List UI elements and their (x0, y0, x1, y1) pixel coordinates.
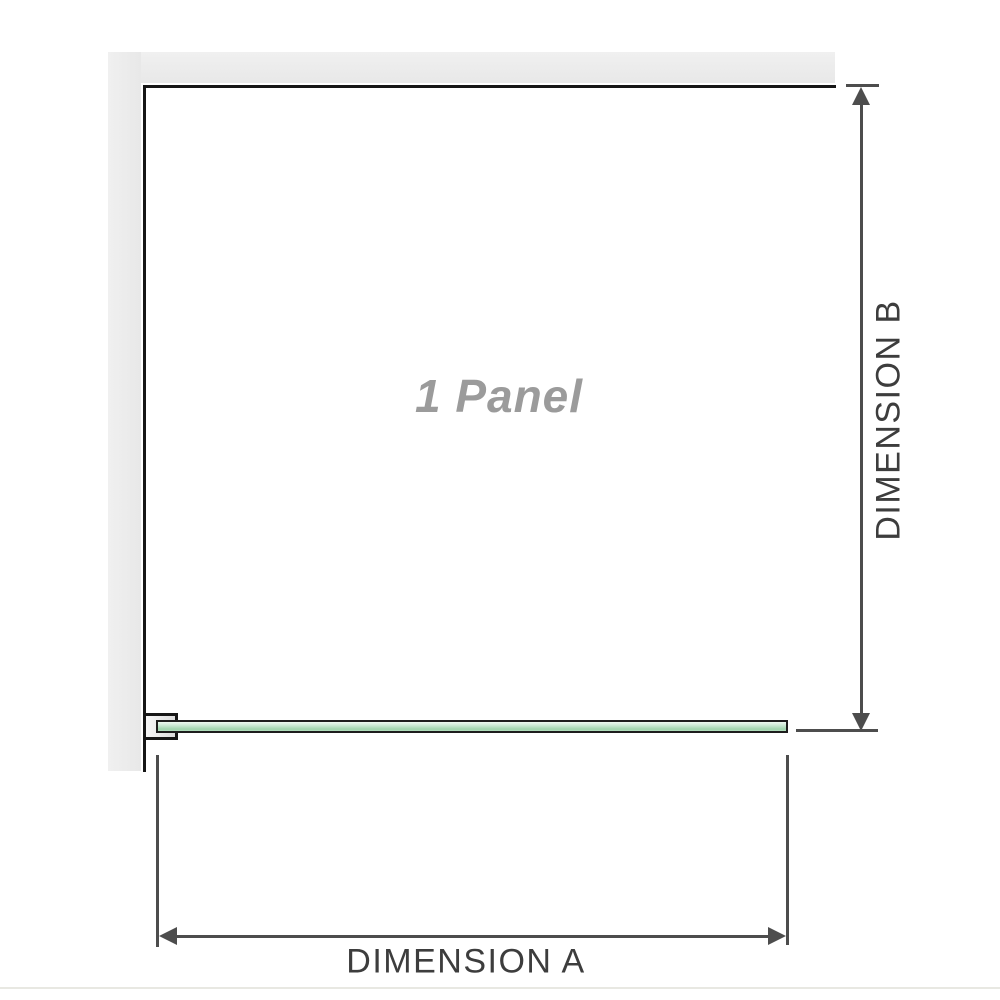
wall-edge-top-line (143, 85, 836, 88)
dimension-b-arrow-down-icon (852, 713, 870, 731)
panel-count-label: 1 Panel (415, 369, 583, 423)
dimension-b-line (860, 100, 863, 718)
wall-top (108, 52, 835, 83)
dimension-a-left-extension-line (156, 755, 159, 947)
wall-left (108, 52, 141, 771)
bottom-divider (0, 987, 1000, 989)
dimension-a-right-extension-line (786, 755, 789, 945)
glass-panel (156, 720, 788, 733)
dimension-a-label: DIMENSION A (346, 943, 585, 982)
dimension-a-line (173, 935, 772, 938)
shower-panel-dimension-diagram: 1 Panel DIMENSION B DIMENSION A (0, 0, 1000, 1000)
dimension-b-label: DIMENSION B (870, 299, 909, 540)
dimension-a-arrow-right-icon (768, 927, 786, 945)
wall-edge-left-line (143, 85, 146, 772)
